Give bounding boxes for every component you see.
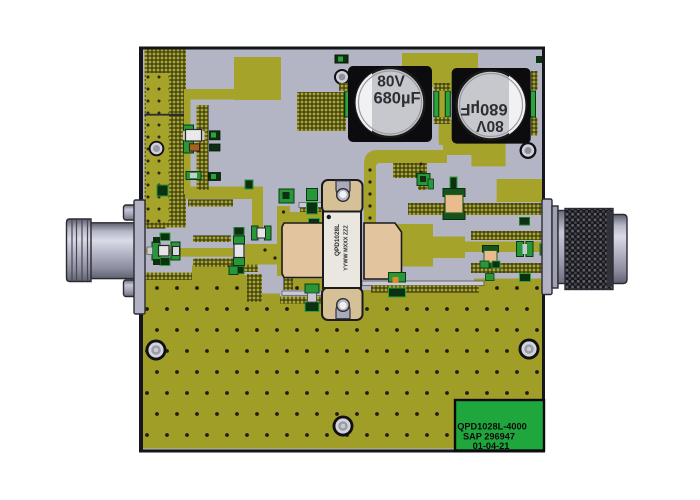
svg-text:80V: 80V bbox=[476, 117, 504, 134]
svg-text:80V: 80V bbox=[377, 74, 405, 91]
svg-text:680µF: 680µF bbox=[373, 90, 420, 108]
svg-text:QPD1028L-4000: QPD1028L-4000 bbox=[457, 422, 526, 432]
svg-text:SAP 296947: SAP 296947 bbox=[463, 432, 515, 442]
svg-text:01-04-21: 01-04-21 bbox=[473, 441, 510, 451]
svg-text:680µF: 680µF bbox=[460, 100, 507, 118]
svg-text:QPD1028L: QPD1028L bbox=[334, 224, 341, 256]
svg-text:YYWW MXXX ZZZ: YYWW MXXX ZZZ bbox=[344, 225, 350, 271]
